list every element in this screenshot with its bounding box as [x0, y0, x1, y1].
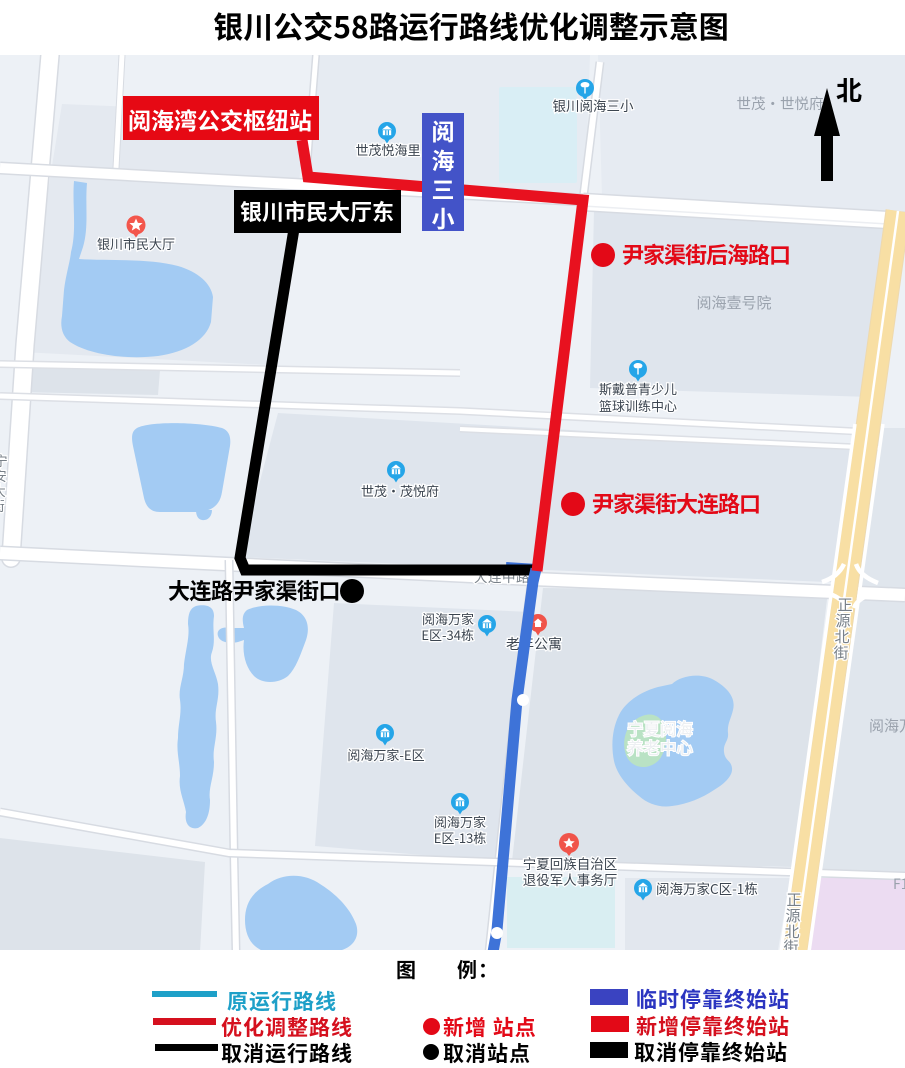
svg-text:退役军人事务厅: 退役军人事务厅: [523, 869, 618, 889]
svg-text:老年公寓: 老年公寓: [506, 634, 562, 654]
svg-text:尹家渠街后海路口: 尹家渠街后海路口: [622, 238, 790, 270]
svg-text:银川市民大厅东: 银川市民大厅东: [240, 195, 394, 227]
svg-text:街: 街: [833, 642, 848, 663]
svg-text:世茂悦海里: 世茂悦海里: [355, 140, 420, 159]
svg-text:阅海湾公交枢纽站: 阅海湾公交枢纽站: [128, 102, 312, 136]
svg-text:街: 街: [783, 936, 798, 957]
svg-text:世茂·茂悦府: 世茂·茂悦府: [361, 481, 439, 500]
svg-text:养老中心: 养老中心: [627, 735, 693, 759]
svg-text:阅海壹号院: 阅海壹号院: [696, 292, 771, 313]
svg-text:E区-13栋: E区-13栋: [434, 828, 487, 847]
svg-text:阅海万家-E区: 阅海万家-E区: [347, 745, 424, 764]
svg-text:阅海万家: 阅海万家: [869, 715, 905, 736]
svg-text:F1: F1: [893, 874, 905, 894]
svg-text:小: 小: [432, 200, 455, 234]
svg-text:尹家渠街大连路口: 尹家渠街大连路口: [592, 487, 760, 519]
svg-text:阅海万家C区-1栋: 阅海万家C区-1栋: [656, 878, 758, 898]
svg-text:银川市民大厅: 银川市民大厅: [97, 234, 175, 253]
svg-text:世茂·世悦府: 世茂·世悦府: [737, 93, 824, 114]
svg-text:E区-34栋: E区-34栋: [421, 625, 474, 644]
svg-text:北: 北: [836, 71, 862, 108]
svg-text:街: 街: [0, 495, 5, 515]
svg-text:篮球训练中心: 篮球训练中心: [599, 396, 677, 415]
svg-text:大连路尹家渠街口: 大连路尹家渠街口: [168, 574, 340, 606]
svg-text:银川阅海三小: 银川阅海三小: [553, 95, 634, 115]
